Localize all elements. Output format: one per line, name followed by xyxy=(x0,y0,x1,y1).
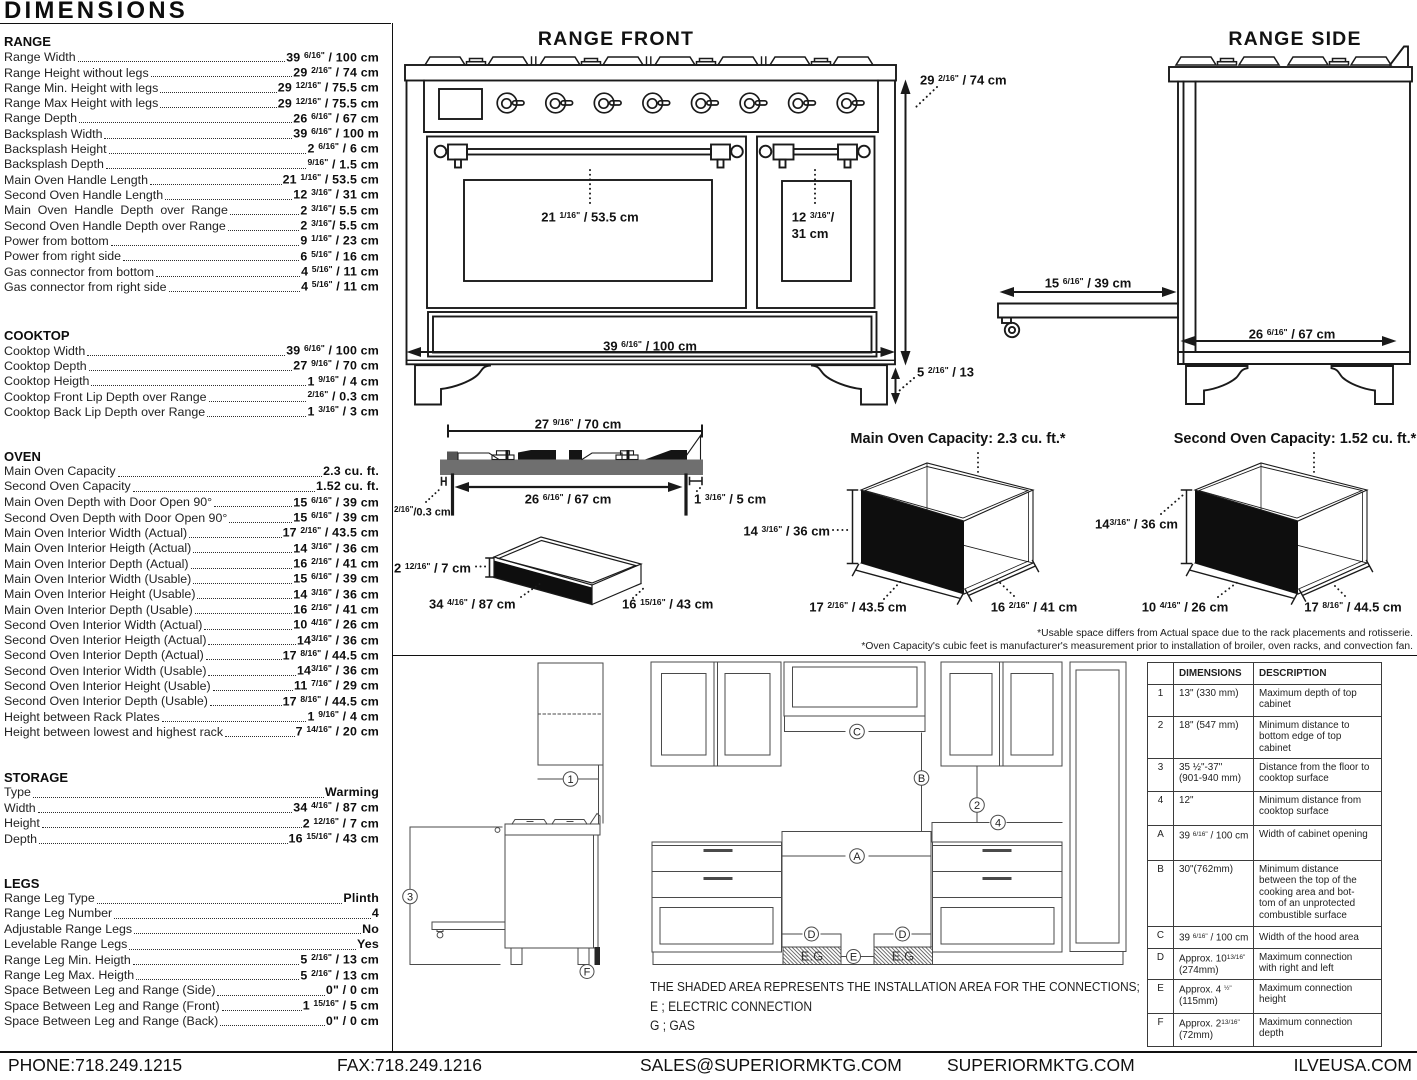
svg-text:F: F xyxy=(584,967,591,979)
svg-text:A: A xyxy=(853,851,861,863)
svg-text:C: C xyxy=(853,727,861,739)
svg-text:D: D xyxy=(808,929,816,941)
svg-text:E: E xyxy=(850,952,857,964)
svg-text:E.G: E.G xyxy=(801,949,823,964)
svg-text:2: 2 xyxy=(974,800,980,812)
svg-text:1: 1 xyxy=(567,774,573,786)
svg-text:E.G: E.G xyxy=(892,949,914,964)
svg-text:B: B xyxy=(918,773,925,785)
svg-text:4: 4 xyxy=(995,818,1001,830)
svg-text:3: 3 xyxy=(407,892,413,904)
svg-text:D: D xyxy=(899,929,907,941)
